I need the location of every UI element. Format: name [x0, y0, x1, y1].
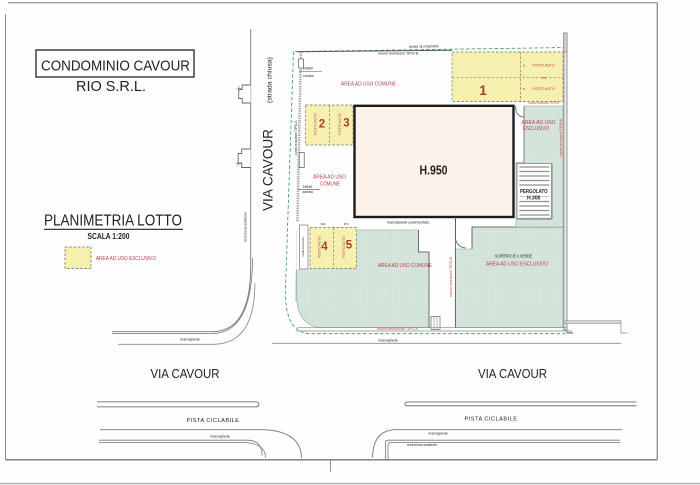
svg-text:limite di proprietà: limite di proprietà: [409, 44, 439, 49]
svg-text:H.300: H.300: [527, 196, 541, 202]
svg-text:carraio: carraio: [303, 74, 314, 78]
svg-text:curva recinzione TIPO-A: curva recinzione TIPO-A: [294, 120, 298, 156]
svg-text:POSTO AUTO: POSTO AUTO: [533, 64, 555, 68]
svg-text:4: 4: [321, 241, 328, 253]
svg-text:24690: 24690: [303, 185, 313, 189]
svg-text:marciapiede: marciapiede: [378, 338, 398, 342]
svg-text:PERGOLATO: PERGOLATO: [520, 189, 548, 195]
svg-text:SCALA 1:200: SCALA 1:200: [88, 232, 130, 241]
svg-text:RIO S.R.L.: RIO S.R.L.: [76, 78, 146, 95]
svg-text:carraio: carraio: [303, 190, 314, 194]
svg-text:B: B: [523, 87, 525, 91]
svg-text:nuova recinzione TIPO-B: nuova recinzione TIPO-B: [529, 101, 560, 105]
svg-text:recinzione esistente: recinzione esistente: [244, 212, 248, 242]
svg-text:H.950: H.950: [420, 163, 448, 178]
svg-text:3: 3: [343, 118, 349, 130]
svg-text:COMUNE: COMUNE: [320, 181, 340, 187]
svg-text:AREA AD USO ESCLUSIVO: AREA AD USO ESCLUSIVO: [96, 256, 156, 262]
svg-text:ESCLUSIVO: ESCLUSIVO: [523, 126, 549, 132]
svg-text:marciapiede: marciapiede: [210, 435, 230, 439]
svg-text:(strada chiusa): (strada chiusa): [267, 57, 274, 103]
svg-text:PLANIMETRIA LOTTO: PLANIMETRIA LOTTO: [44, 213, 182, 230]
svg-text:VIA CAVOUR: VIA CAVOUR: [261, 129, 276, 211]
svg-text:AREA AD USO: AREA AD USO: [313, 174, 347, 180]
svg-text:marciapiede: marciapiede: [180, 337, 200, 341]
svg-text:nuova recinzione TIPO-B: nuova recinzione TIPO-B: [378, 52, 419, 56]
svg-text:VIA CAVOUR: VIA CAVOUR: [478, 367, 547, 381]
svg-text:370: 370: [344, 222, 349, 226]
svg-text:300: 300: [321, 222, 326, 226]
svg-text:AREA AD USO COMUNE: AREA AD USO COMUNE: [378, 263, 432, 269]
svg-text:POSTO AUTO: POSTO AUTO: [314, 113, 318, 135]
svg-text:300: 300: [541, 76, 546, 80]
svg-text:AREA AD USO ESCLUSIVO: AREA AD USO ESCLUSIVO: [486, 261, 548, 267]
svg-text:5: 5: [346, 239, 353, 251]
svg-text:PISTA CICLABILE: PISTA CICLABILE: [464, 417, 517, 423]
svg-text:nuova recinzione TIPO-A: nuova recinzione TIPO-A: [377, 327, 418, 331]
svg-text:CONDOMINIO CAVOUR: CONDOMINIO CAVOUR: [41, 58, 190, 75]
svg-text:recinzione esistente: recinzione esistente: [407, 443, 437, 447]
svg-text:marciapiede: marciapiede: [428, 431, 448, 435]
svg-text:marciapiede pavimentato: marciapiede pavimentato: [387, 220, 429, 224]
svg-text:1: 1: [479, 83, 487, 98]
svg-text:nuova recinzione TIPO-B: nuova recinzione TIPO-B: [559, 118, 563, 157]
svg-text:VIA CAVOUR: VIA CAVOUR: [151, 367, 220, 381]
svg-text:2: 2: [319, 119, 325, 131]
svg-text:PISTA CICLABILE: PISTA CICLABILE: [186, 418, 239, 424]
svg-text:AREA AD USO: AREA AD USO: [522, 120, 556, 126]
svg-text:POSTO AUTO: POSTO AUTO: [318, 236, 322, 258]
svg-text:AREA AD USO COMUNE: AREA AD USO COMUNE: [341, 82, 396, 88]
svg-text:nuova recinzione TIPO-B: nuova recinzione TIPO-B: [449, 256, 453, 297]
svg-text:POSTO AUTO: POSTO AUTO: [342, 236, 346, 258]
svg-text:POSTO AUTO: POSTO AUTO: [533, 87, 555, 91]
svg-text:scala sicurezza: scala sicurezza: [301, 237, 305, 257]
svg-text:B: B: [523, 64, 525, 68]
svg-text:24690: 24690: [303, 67, 313, 71]
svg-text:POSTO AUTO: POSTO AUTO: [338, 113, 342, 135]
svg-text:SUPERFICIE A VERDE: SUPERFICIE A VERDE: [495, 254, 532, 259]
